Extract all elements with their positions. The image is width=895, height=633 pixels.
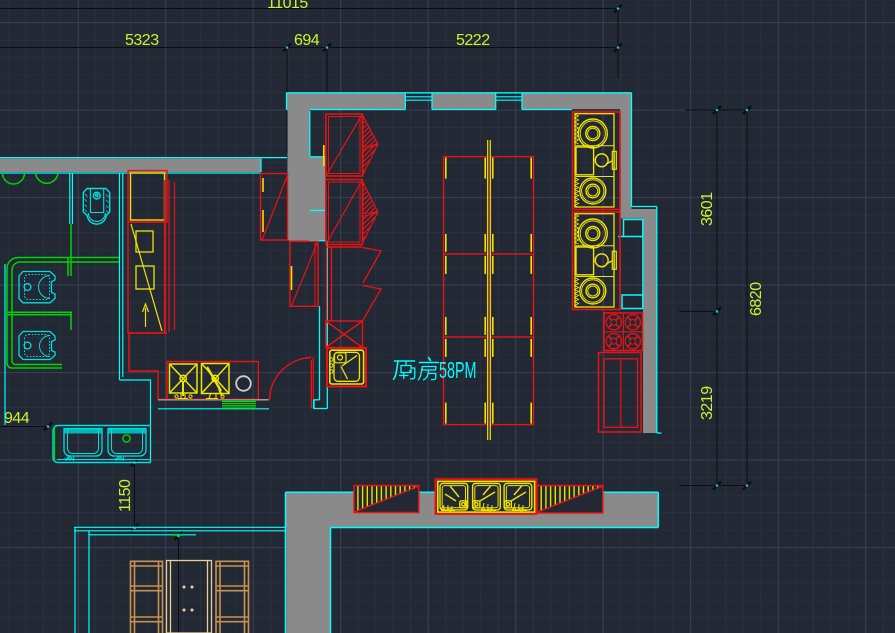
svg-text:5222: 5222 [456, 32, 490, 49]
svg-text:3219: 3219 [699, 386, 716, 420]
svg-text:3601: 3601 [699, 192, 716, 226]
svg-text:694: 694 [294, 32, 320, 49]
svg-text:944: 944 [4, 410, 30, 427]
svg-text:1150: 1150 [117, 479, 134, 512]
svg-text:11015: 11015 [267, 0, 308, 12]
svg-text:6820: 6820 [748, 282, 765, 316]
svg-text:5323: 5323 [125, 32, 159, 49]
svg-text:58PM: 58PM [439, 357, 477, 383]
